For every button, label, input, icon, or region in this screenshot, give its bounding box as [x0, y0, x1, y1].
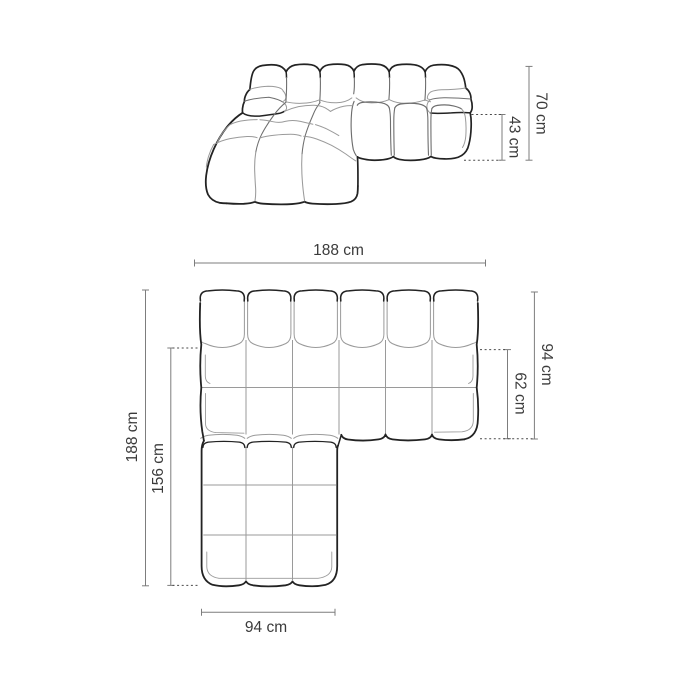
svg-text:94 cm: 94 cm	[245, 619, 287, 636]
svg-text:156 cm: 156 cm	[150, 443, 167, 494]
svg-text:70 cm: 70 cm	[532, 92, 549, 134]
svg-text:188 cm: 188 cm	[313, 242, 364, 259]
svg-text:62 cm: 62 cm	[511, 372, 528, 414]
svg-text:94 cm: 94 cm	[538, 343, 555, 385]
svg-text:188 cm: 188 cm	[124, 412, 141, 463]
svg-text:43 cm: 43 cm	[505, 116, 522, 158]
